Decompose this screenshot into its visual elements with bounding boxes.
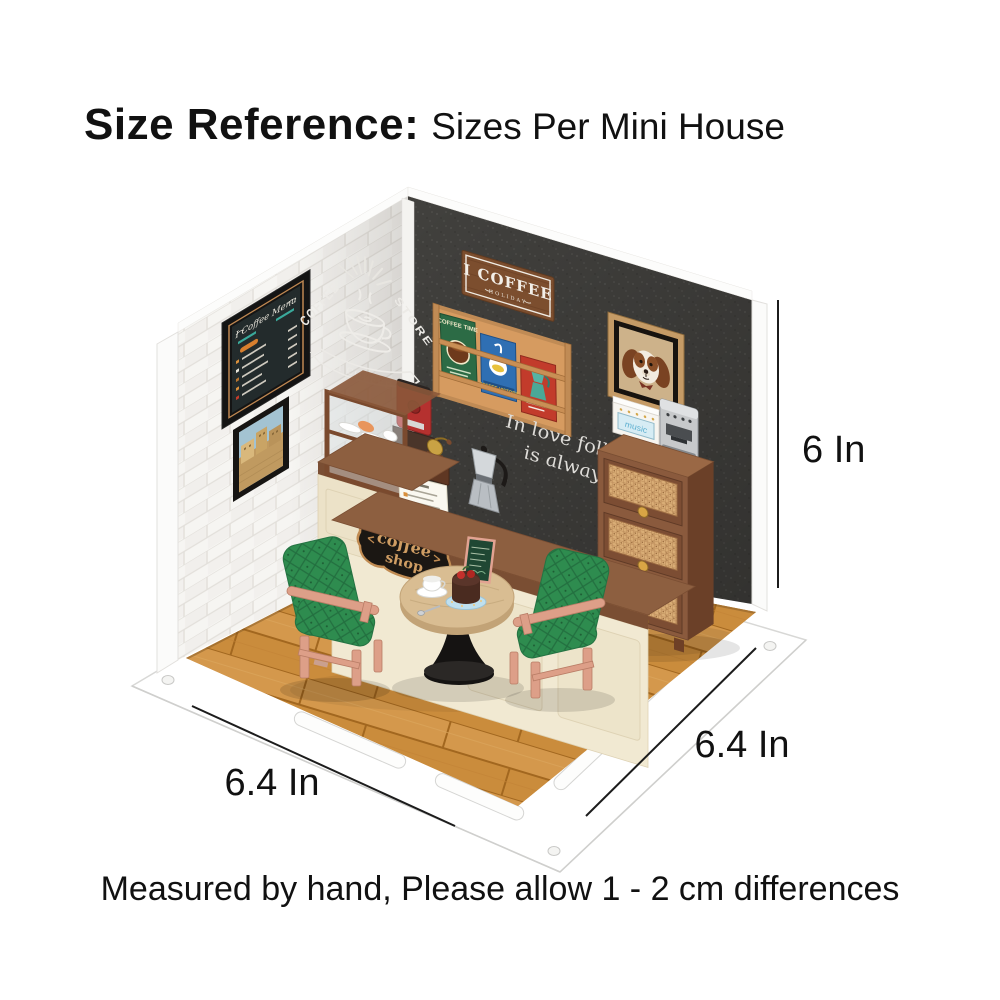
back-wall-edge-flange	[752, 300, 767, 611]
width-dimension-label: 6.4 In	[224, 762, 319, 804]
size-reference-page: Size Reference: Sizes Per Mini House	[0, 0, 1000, 1000]
product-illustration: I Coffee Menu	[0, 0, 1000, 1000]
height-dimension-label: 6 In	[802, 429, 865, 471]
depth-dimension-label: 6.4 In	[694, 724, 789, 766]
left-wall-edge-flange	[157, 332, 178, 673]
measurement-note: Measured by hand, Please allow 1 - 2 cm …	[0, 870, 1000, 909]
cabinet-side	[688, 462, 714, 641]
